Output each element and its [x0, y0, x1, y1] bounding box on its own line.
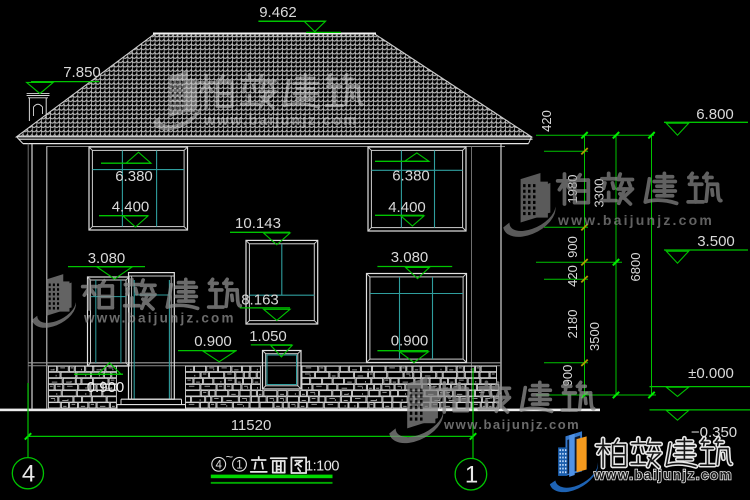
svg-text:4: 4 — [215, 460, 222, 472]
svg-text:420: 420 — [565, 265, 580, 287]
svg-text:1.050: 1.050 — [249, 328, 287, 345]
svg-text:3500: 3500 — [587, 322, 602, 351]
svg-text:4: 4 — [22, 461, 35, 488]
svg-text:www.baijunjz.com: www.baijunjz.com — [83, 311, 236, 326]
svg-text:10.143: 10.143 — [235, 215, 281, 232]
svg-text:3.080: 3.080 — [88, 250, 126, 267]
svg-text:900: 900 — [565, 236, 580, 258]
svg-text:0.900: 0.900 — [87, 379, 125, 396]
svg-text:4.400: 4.400 — [112, 199, 150, 216]
svg-text:1:100: 1:100 — [305, 459, 339, 475]
svg-text:−0.350: −0.350 — [691, 424, 737, 441]
svg-text:8.163: 8.163 — [241, 292, 279, 309]
svg-text:420: 420 — [539, 110, 554, 132]
svg-text:11520: 11520 — [231, 417, 272, 434]
svg-text:0.900: 0.900 — [194, 333, 232, 350]
svg-text:3.500: 3.500 — [697, 233, 735, 250]
svg-text:0.900: 0.900 — [391, 333, 429, 350]
svg-text:www.baijunjz.com: www.baijunjz.com — [593, 468, 733, 483]
svg-text:3.080: 3.080 — [391, 249, 429, 266]
svg-text:±0.000: ±0.000 — [688, 365, 734, 382]
svg-text:6800: 6800 — [628, 253, 643, 282]
svg-text:7.850: 7.850 — [63, 64, 101, 81]
svg-text:1: 1 — [236, 460, 242, 472]
svg-text:6.380: 6.380 — [115, 168, 153, 185]
svg-text:~: ~ — [226, 449, 234, 464]
svg-text:6.800: 6.800 — [696, 106, 734, 123]
svg-text:www.baijunjz.com: www.baijunjz.com — [557, 212, 714, 228]
svg-text:1: 1 — [465, 462, 478, 489]
svg-text:4.400: 4.400 — [388, 199, 426, 216]
svg-text:9.462: 9.462 — [259, 4, 297, 21]
svg-text:www.baijunjz.com: www.baijunjz.com — [443, 417, 580, 432]
svg-text:6.380: 6.380 — [392, 168, 430, 185]
svg-text:2180: 2180 — [565, 310, 580, 339]
svg-text:www.baijunjz.com: www.baijunjz.com — [203, 113, 358, 129]
